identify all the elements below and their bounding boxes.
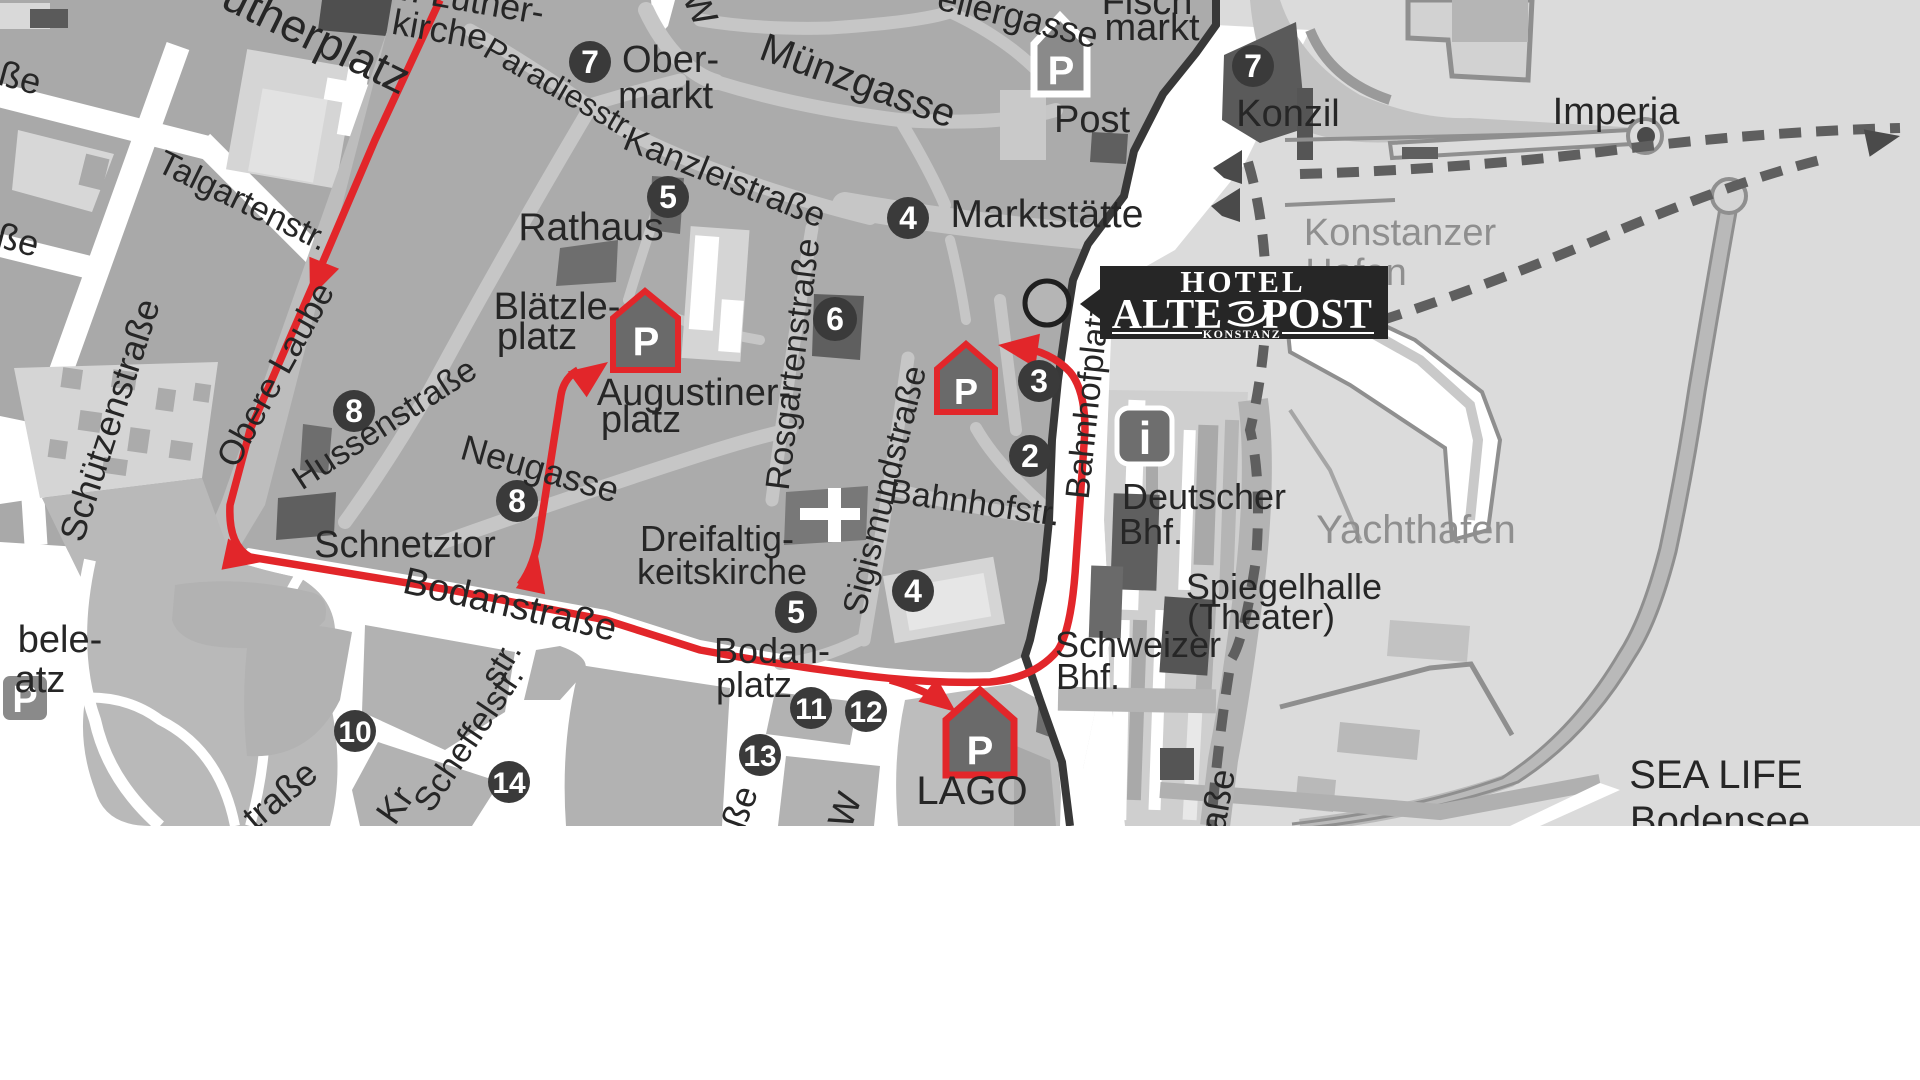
svg-text:5: 5 (787, 594, 805, 630)
svg-text:P: P (1048, 49, 1075, 93)
svg-text:Bhf.: Bhf. (1056, 656, 1120, 697)
svg-text:KONSTANZ: KONSTANZ (1203, 327, 1281, 341)
svg-text:Konzil: Konzil (1236, 93, 1340, 135)
svg-text:markt: markt (618, 75, 713, 117)
svg-text:11: 11 (795, 693, 827, 726)
svg-text:6: 6 (826, 301, 844, 337)
svg-text:14: 14 (492, 767, 526, 800)
svg-text:atz: atz (15, 659, 66, 701)
svg-text:Bhf.: Bhf. (1119, 511, 1183, 552)
svg-text:Rathaus: Rathaus (518, 206, 663, 249)
svg-text:platz: platz (716, 664, 792, 705)
svg-text:Konstanzer: Konstanzer (1304, 212, 1497, 254)
svg-text:Marktstätte: Marktstätte (951, 193, 1144, 236)
svg-text:Yachthafen: Yachthafen (1316, 508, 1515, 552)
svg-text:10: 10 (338, 716, 371, 749)
svg-text:Schnetztor: Schnetztor (314, 524, 496, 566)
svg-text:13: 13 (743, 740, 776, 773)
svg-text:LAGO: LAGO (916, 769, 1027, 813)
svg-text:P: P (967, 729, 994, 773)
svg-text:platz: platz (497, 316, 577, 358)
svg-text:keitskirche: keitskirche (637, 551, 807, 592)
svg-text:7: 7 (581, 44, 599, 80)
svg-text:platz: platz (601, 399, 681, 441)
svg-text:12: 12 (849, 696, 882, 729)
svg-text:Imperia: Imperia (1553, 91, 1681, 133)
svg-text:markt: markt (1105, 7, 1200, 49)
svg-text:Post: Post (1054, 99, 1130, 141)
svg-text:4: 4 (904, 573, 922, 609)
svg-text:4: 4 (899, 200, 917, 236)
svg-text:i: i (1139, 412, 1152, 464)
svg-text:3: 3 (1030, 363, 1048, 399)
svg-text:2: 2 (1021, 438, 1039, 474)
svg-text:P: P (633, 320, 660, 364)
svg-text:7: 7 (1244, 48, 1262, 84)
svg-text:bele-: bele- (18, 619, 103, 661)
svg-text:SEA LIFE: SEA LIFE (1629, 753, 1802, 797)
svg-text:8: 8 (508, 483, 526, 519)
svg-text:P: P (954, 371, 978, 412)
